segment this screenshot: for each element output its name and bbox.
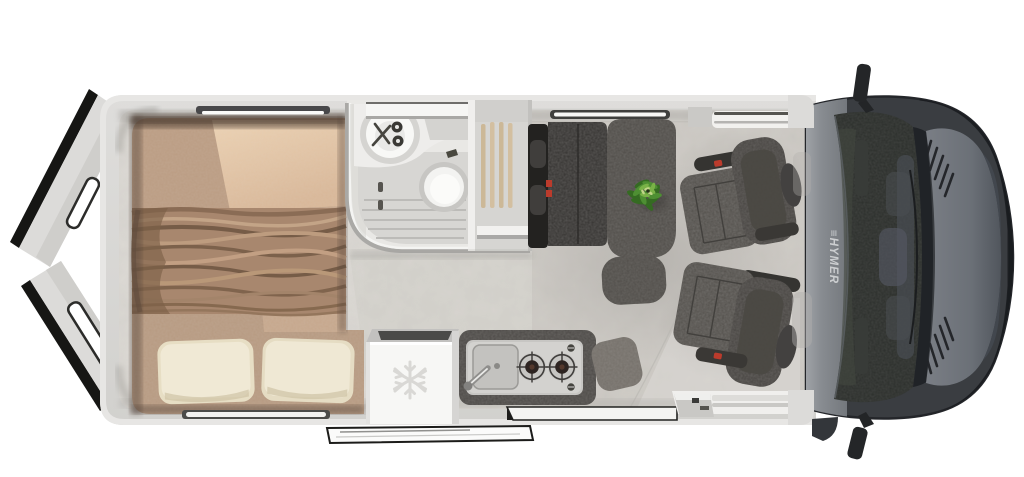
svg-text:≡HYMER: ≡HYMER bbox=[827, 230, 839, 284]
